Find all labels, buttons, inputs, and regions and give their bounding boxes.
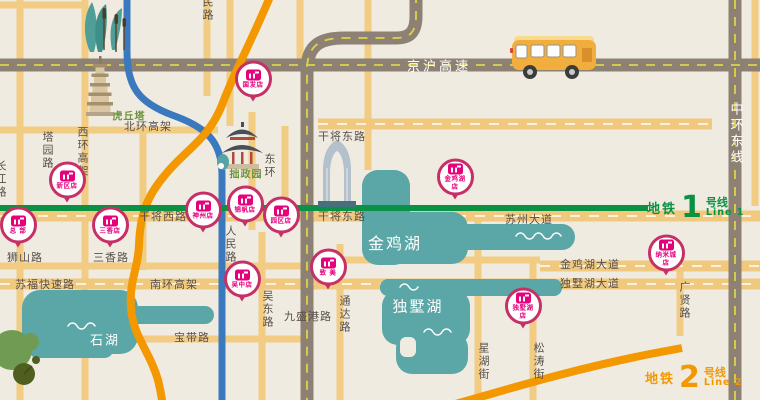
brand-logo-icon bbox=[11, 215, 26, 226]
brand-logo-icon bbox=[516, 292, 531, 303]
store-name: 国发店 bbox=[243, 81, 264, 89]
store-pin-吴中店[interactable]: 吴中店 bbox=[220, 261, 264, 298]
store-name: 新区店 bbox=[57, 182, 78, 190]
brand-logo-icon bbox=[659, 239, 674, 250]
store-name: 独墅湖 店 bbox=[513, 304, 534, 320]
store-pin-国发店[interactable]: 国发店 bbox=[231, 61, 275, 98]
store-name: 吴中店 bbox=[232, 281, 253, 289]
dushu-lake-notch bbox=[400, 337, 416, 357]
pin-body: 三香店 bbox=[92, 207, 129, 244]
store-name: 园区店 bbox=[271, 217, 292, 225]
pin-body: 总 部 bbox=[0, 207, 37, 244]
store-pin-金鸡湖店[interactable]: 金鸡湖 店 bbox=[433, 159, 477, 196]
store-name: 致 美 bbox=[320, 269, 337, 277]
brand-logo-icon bbox=[321, 257, 336, 268]
store-pin-致美[interactable]: 致 美 bbox=[306, 249, 350, 286]
brand-logo-icon bbox=[448, 163, 463, 174]
store-pin-独墅湖店[interactable]: 独墅湖 店 bbox=[501, 288, 545, 325]
store-name: 三香店 bbox=[100, 227, 121, 235]
store-name: 金鸡湖 店 bbox=[445, 175, 466, 191]
brand-logo-icon bbox=[196, 200, 211, 211]
pin-body: 神州店 bbox=[185, 192, 222, 229]
pin-body: 金鸡湖 店 bbox=[437, 159, 474, 196]
map-canvas bbox=[0, 0, 760, 400]
store-pin-纳米城店[interactable]: 纳米城 店 bbox=[644, 235, 688, 272]
pin-body: 纳米城 店 bbox=[648, 235, 685, 272]
pin-body: 吴中店 bbox=[224, 261, 261, 298]
brand-logo-icon bbox=[103, 215, 118, 226]
brand-logo-icon bbox=[246, 69, 261, 80]
store-name: 总 部 bbox=[10, 227, 27, 235]
suzhou-store-map: 京沪高速中环东线北环高架西环高架塔园路长江路人民路东环人民路吴东路通达路星湖街松… bbox=[0, 0, 760, 400]
store-name: 纳米城 店 bbox=[656, 251, 677, 267]
store-pin-神州店[interactable]: 神州店 bbox=[181, 192, 225, 229]
pin-body: 独墅湖 店 bbox=[505, 288, 542, 325]
store-pin-三香店[interactable]: 三香店 bbox=[88, 207, 132, 244]
pin-body: 锦帆店 bbox=[227, 186, 264, 223]
brand-logo-icon bbox=[60, 170, 75, 181]
pin-body: 国发店 bbox=[235, 61, 272, 98]
brand-logo-icon bbox=[235, 269, 250, 280]
store-name: 锦帆店 bbox=[235, 206, 256, 214]
brand-logo-icon bbox=[238, 194, 253, 205]
store-pin-园区店[interactable]: 园区店 bbox=[259, 197, 303, 234]
brand-logo-icon bbox=[274, 205, 289, 216]
pin-body: 致 美 bbox=[310, 249, 347, 286]
pin-body: 新区店 bbox=[49, 162, 86, 199]
store-name: 神州店 bbox=[193, 212, 214, 220]
store-pin-总部[interactable]: 总 部 bbox=[0, 207, 40, 244]
pin-body: 园区店 bbox=[263, 197, 300, 234]
store-pin-新区店[interactable]: 新区店 bbox=[45, 162, 89, 199]
